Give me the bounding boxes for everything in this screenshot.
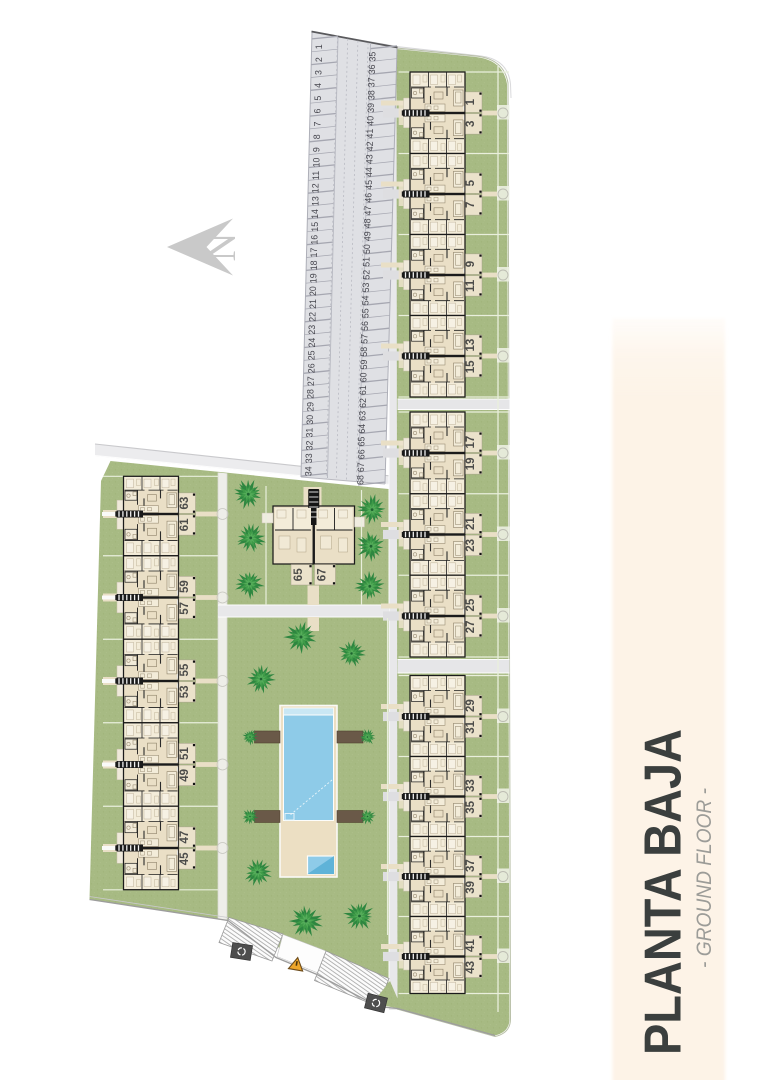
svg-text:40: 40 [366, 116, 376, 126]
svg-text:62: 62 [358, 398, 368, 408]
svg-text:56: 56 [360, 321, 370, 331]
svg-text:41: 41 [465, 939, 477, 952]
svg-text:45: 45 [179, 852, 191, 865]
svg-text:7: 7 [465, 202, 477, 208]
svg-text:32: 32 [304, 441, 314, 451]
svg-text:48: 48 [363, 218, 373, 228]
svg-text:38: 38 [366, 90, 376, 100]
svg-text:8: 8 [312, 134, 322, 139]
svg-text:52: 52 [361, 270, 371, 280]
svg-text:27: 27 [465, 621, 477, 634]
svg-text:49: 49 [362, 231, 372, 241]
svg-text:11: 11 [465, 279, 477, 292]
svg-text:20: 20 [308, 286, 318, 296]
svg-text:54: 54 [361, 295, 371, 305]
svg-text:35: 35 [465, 800, 477, 813]
svg-text:26: 26 [306, 363, 316, 373]
svg-text:2: 2 [314, 57, 324, 62]
svg-text:63: 63 [179, 497, 191, 510]
svg-text:60: 60 [359, 372, 369, 382]
svg-text:55: 55 [179, 663, 191, 676]
svg-text:11: 11 [311, 171, 321, 180]
svg-text:36: 36 [367, 64, 377, 74]
svg-text:29: 29 [465, 699, 477, 712]
svg-text:15: 15 [310, 222, 320, 232]
svg-text:51: 51 [362, 257, 372, 267]
svg-text:- GROUND FLOOR -: - GROUND FLOOR - [693, 788, 716, 968]
svg-text:21: 21 [465, 517, 477, 530]
svg-text:43: 43 [365, 154, 375, 164]
svg-text:9: 9 [465, 261, 477, 267]
svg-text:13: 13 [310, 196, 320, 206]
svg-text:57: 57 [360, 334, 370, 344]
svg-text:3: 3 [314, 70, 324, 75]
svg-text:33: 33 [304, 453, 314, 463]
svg-text:N: N [199, 233, 244, 262]
svg-text:29: 29 [305, 402, 315, 412]
svg-text:65: 65 [293, 568, 305, 581]
svg-text:42: 42 [365, 141, 375, 151]
svg-text:41: 41 [365, 129, 375, 139]
svg-text:33: 33 [465, 779, 477, 792]
svg-text:64: 64 [357, 424, 367, 434]
svg-text:15: 15 [465, 360, 477, 373]
svg-text:31: 31 [305, 428, 315, 438]
svg-text:25: 25 [307, 350, 317, 360]
svg-text:30: 30 [305, 415, 315, 425]
svg-text:47: 47 [363, 206, 373, 216]
svg-text:39: 39 [366, 103, 376, 113]
svg-text:28: 28 [306, 389, 316, 399]
svg-text:31: 31 [465, 720, 477, 733]
svg-text:35: 35 [367, 52, 377, 62]
svg-text:23: 23 [307, 325, 317, 335]
svg-text:14: 14 [310, 209, 320, 219]
svg-text:24: 24 [307, 338, 317, 348]
svg-text:6: 6 [313, 109, 323, 114]
svg-text:4: 4 [313, 83, 323, 88]
svg-text:21: 21 [308, 299, 318, 309]
svg-text:67: 67 [317, 568, 329, 581]
svg-text:17: 17 [465, 436, 477, 449]
svg-text:1: 1 [465, 98, 477, 105]
svg-text:45: 45 [364, 180, 374, 190]
svg-text:61: 61 [358, 385, 368, 395]
svg-text:47: 47 [179, 831, 191, 844]
svg-text:3: 3 [465, 121, 477, 127]
svg-text:57: 57 [179, 602, 191, 615]
svg-text:37: 37 [367, 77, 377, 87]
svg-text:68: 68 [356, 475, 366, 485]
svg-text:37: 37 [465, 859, 477, 872]
svg-text:1: 1 [314, 44, 324, 49]
svg-text:13: 13 [465, 339, 477, 352]
svg-text:5: 5 [313, 96, 323, 101]
svg-text:19: 19 [465, 458, 477, 471]
svg-text:19: 19 [309, 273, 319, 283]
svg-text:23: 23 [465, 539, 477, 552]
svg-text:5: 5 [465, 179, 477, 186]
svg-text:39: 39 [465, 881, 477, 894]
svg-text:46: 46 [364, 193, 374, 203]
svg-text:17: 17 [309, 248, 319, 258]
svg-text:10: 10 [311, 158, 321, 168]
svg-text:55: 55 [360, 308, 370, 318]
svg-text:49: 49 [179, 769, 191, 782]
svg-text:34: 34 [304, 466, 314, 476]
svg-text:63: 63 [358, 411, 368, 421]
svg-text:65: 65 [357, 437, 367, 447]
svg-text:PLANTA BAJA: PLANTA BAJA [635, 729, 693, 1055]
svg-text:58: 58 [359, 347, 369, 357]
svg-text:51: 51 [179, 747, 191, 760]
svg-text:25: 25 [465, 598, 477, 611]
svg-text:43: 43 [465, 961, 477, 974]
svg-text:7: 7 [312, 121, 322, 126]
svg-text:18: 18 [309, 260, 319, 270]
svg-text:12: 12 [311, 183, 321, 193]
svg-text:53: 53 [179, 686, 191, 699]
svg-text:50: 50 [362, 244, 372, 254]
svg-text:9: 9 [312, 147, 322, 152]
svg-text:16: 16 [309, 235, 319, 245]
svg-text:59: 59 [359, 360, 369, 370]
svg-text:59: 59 [179, 580, 191, 593]
svg-text:27: 27 [306, 376, 316, 386]
svg-text:61: 61 [179, 518, 191, 531]
svg-text:22: 22 [308, 312, 318, 322]
svg-text:66: 66 [356, 449, 366, 459]
svg-text:53: 53 [361, 283, 371, 293]
svg-text:67: 67 [356, 462, 366, 472]
svg-text:44: 44 [364, 167, 374, 177]
